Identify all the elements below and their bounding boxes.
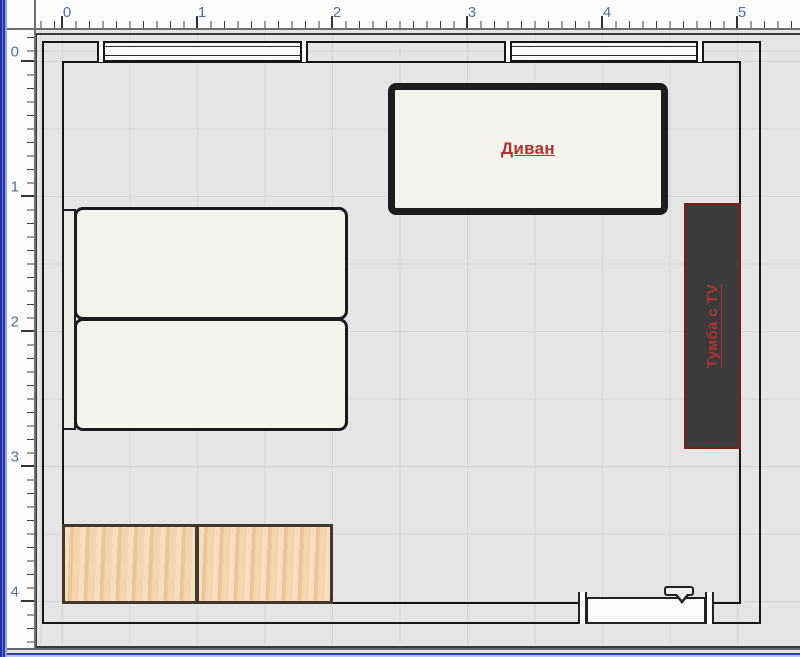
cabinet-right[interactable] xyxy=(196,524,333,604)
ruler-major-tick xyxy=(21,600,34,602)
ruler-major-tick xyxy=(21,195,34,197)
bed-mattress-bottom xyxy=(74,318,348,431)
ruler-number: 4 xyxy=(11,584,19,601)
ruler-number: 1 xyxy=(11,179,19,196)
ruler-minor-ticks xyxy=(36,21,800,28)
sofa[interactable]: Диван xyxy=(388,83,668,215)
ruler-major-tick xyxy=(21,60,34,62)
ruler-number: 2 xyxy=(333,4,341,21)
radiator-end-post xyxy=(705,592,714,624)
horizontal-ruler: 0 1 2 3 4 5 xyxy=(36,0,800,30)
bed-mattress-top xyxy=(74,207,348,320)
tv-stand-label: Тумба с TV xyxy=(704,284,721,368)
window-jamb xyxy=(696,41,704,62)
cabinet-left[interactable] xyxy=(62,524,198,604)
window-border-left xyxy=(0,0,7,657)
window-top-left[interactable] xyxy=(97,41,308,62)
floor-plan-app: Диван Тумба с TV 0 1 2 3 4 5 xyxy=(0,0,800,657)
ruler-number: 4 xyxy=(603,4,611,21)
tv-stand[interactable]: Тумба с TV xyxy=(684,203,741,449)
ruler-minor-ticks xyxy=(27,30,34,648)
bed[interactable] xyxy=(62,207,348,431)
window-jamb xyxy=(97,41,105,62)
ruler-corner-box xyxy=(7,0,36,30)
ruler-number: 1 xyxy=(198,4,206,21)
vertical-ruler: 0 1 2 3 4 xyxy=(7,30,36,648)
ruler-number: 5 xyxy=(738,4,746,21)
window-jamb xyxy=(300,41,308,62)
ruler-number: 0 xyxy=(11,44,19,61)
window-glazing xyxy=(512,41,696,62)
ruler-major-tick xyxy=(21,330,34,332)
valve-handle-icon xyxy=(677,594,687,600)
sofa-label: Диван xyxy=(501,139,555,159)
ruler-major-tick xyxy=(21,465,34,467)
ruler-number: 0 xyxy=(63,4,71,21)
window-border-bottom xyxy=(0,648,800,657)
ruler-number: 3 xyxy=(468,4,476,21)
window-top-right[interactable] xyxy=(504,41,704,62)
ruler-number: 3 xyxy=(11,449,19,466)
window-jamb xyxy=(504,41,512,62)
ruler-number: 2 xyxy=(11,314,19,331)
radiator[interactable] xyxy=(578,584,714,625)
window-glazing xyxy=(105,41,300,62)
